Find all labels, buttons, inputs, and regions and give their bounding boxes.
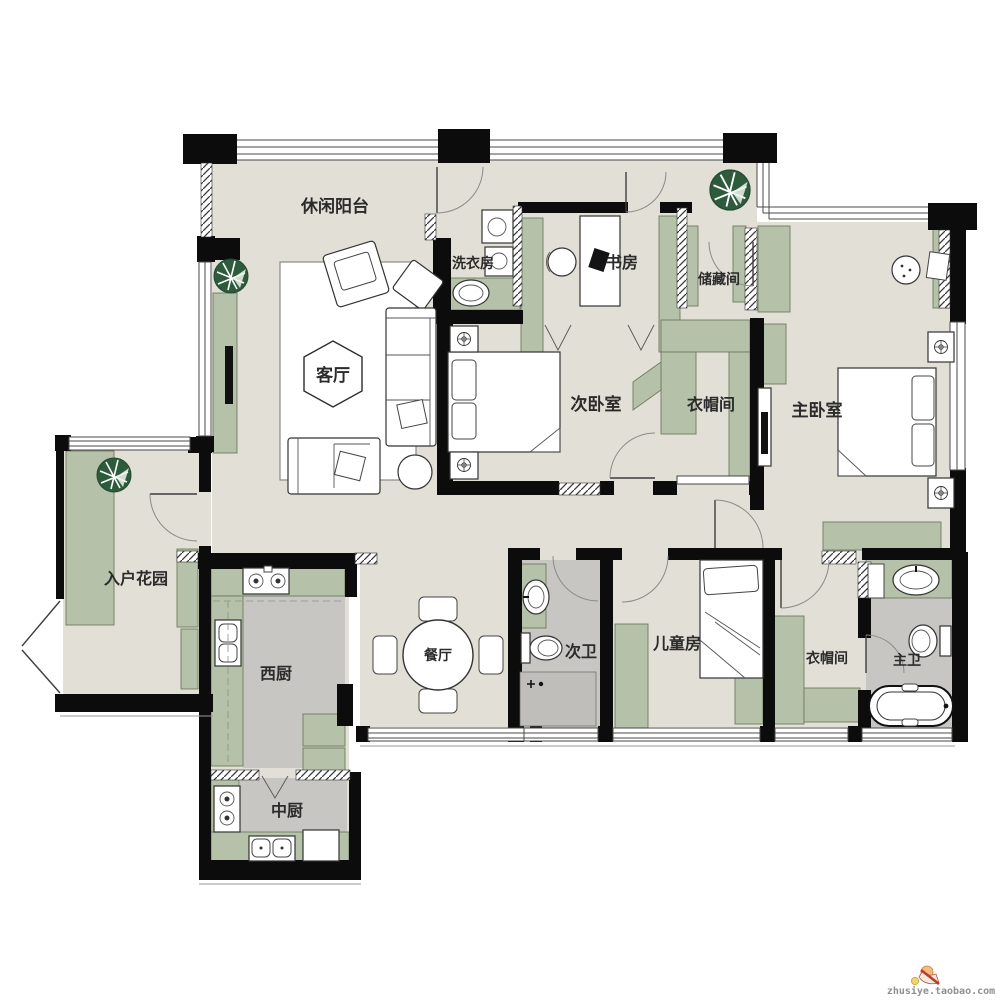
floor-plan-page: 休闲阳台 洗衣房 书房 储藏间 客厅 次卧室 衣帽间 主卧室 入户花园 西厨 餐… bbox=[0, 0, 1000, 1000]
plant-icon bbox=[710, 170, 750, 210]
laundry-sink bbox=[453, 280, 489, 306]
watermark-text: zhusiye.taobao.com bbox=[887, 985, 995, 997]
pillow bbox=[452, 360, 476, 400]
toilet bbox=[530, 636, 562, 660]
room-label-cloakroom-north: 衣帽间 bbox=[687, 395, 735, 414]
plant-icon bbox=[97, 458, 131, 492]
room-label-kids-room: 儿童房 bbox=[652, 634, 701, 653]
south-cloakroom-wardrobe bbox=[804, 688, 860, 722]
toilet-tank bbox=[940, 626, 951, 656]
storage-shelf bbox=[733, 226, 746, 302]
kids-room-window bbox=[613, 728, 760, 741]
room-label-master-bedroom: 主卧室 bbox=[792, 400, 843, 421]
plant-icon bbox=[214, 259, 248, 293]
watermark: zhusiye.taobao.com bbox=[887, 966, 995, 997]
dressing-stool bbox=[892, 256, 920, 284]
room-label-leisure-balcony: 休闲阳台 bbox=[300, 196, 369, 217]
north-cloakroom-wardrobe bbox=[729, 352, 750, 482]
cloakroom-sliding-door bbox=[677, 476, 749, 484]
master-bath-window bbox=[862, 728, 952, 741]
north-cloakroom-wardrobe bbox=[661, 320, 750, 352]
room-label-second-bath: 次卫 bbox=[565, 642, 597, 661]
room-label-laundry: 洗衣房 bbox=[452, 255, 494, 272]
pillow bbox=[912, 424, 934, 466]
dining-chair bbox=[419, 689, 457, 713]
dining-chair bbox=[479, 636, 503, 674]
dining-chair bbox=[373, 636, 397, 674]
room-label-chinese-kitchen: 中厨 bbox=[271, 801, 303, 820]
north-cloakroom-wardrobe bbox=[661, 352, 696, 434]
floor-plan-canvas: 休闲阳台 洗衣房 书房 储藏间 客厅 次卧室 衣帽间 主卧室 入户花园 西厨 餐… bbox=[0, 0, 1000, 1000]
master-wardrobe bbox=[758, 226, 790, 312]
watermark-mascot-icon bbox=[911, 966, 939, 985]
pillow bbox=[452, 403, 476, 439]
pillow bbox=[703, 565, 759, 595]
bath-shelf bbox=[868, 564, 884, 598]
study-cabinet-left bbox=[521, 218, 543, 352]
shoe-cabinet bbox=[181, 629, 198, 689]
dining-window bbox=[368, 728, 530, 741]
washing-machine bbox=[482, 210, 513, 243]
room-label-west-kitchen: 西厨 bbox=[260, 664, 292, 683]
room-label-second-bedroom: 次卧室 bbox=[571, 394, 622, 415]
room-label-study: 书房 bbox=[606, 253, 638, 272]
toilet-tank bbox=[521, 633, 530, 663]
room-label-living: 客厅 bbox=[315, 365, 350, 386]
dining-chair bbox=[419, 597, 457, 621]
window-top-middle bbox=[490, 140, 723, 160]
cloakroom-window bbox=[775, 728, 848, 741]
main-entrance-door bbox=[22, 601, 60, 693]
side-table bbox=[398, 455, 432, 489]
room-label-dining: 餐厅 bbox=[423, 647, 452, 664]
corridor-cabinet bbox=[823, 522, 941, 550]
sofa-small bbox=[288, 438, 380, 494]
tv-screen bbox=[225, 346, 233, 404]
dishwasher bbox=[303, 830, 339, 861]
sofa-main bbox=[386, 308, 436, 446]
room-label-entry-garden: 入户花园 bbox=[104, 569, 168, 588]
room-label-master-bath: 主卫 bbox=[893, 652, 921, 669]
kids-room-furniture bbox=[700, 560, 763, 678]
kids-wardrobe bbox=[615, 624, 648, 728]
window-top-right-step bbox=[757, 163, 928, 219]
pillow bbox=[912, 376, 934, 420]
study-chair bbox=[548, 248, 576, 276]
entry-garden-window bbox=[69, 437, 190, 450]
room-label-storage: 储藏间 bbox=[697, 271, 740, 288]
window-top-left bbox=[237, 140, 438, 160]
room-label-cloakroom-south: 衣帽间 bbox=[806, 650, 848, 667]
bath-window bbox=[524, 728, 598, 741]
vanity-mirror bbox=[926, 252, 949, 281]
kids-desk bbox=[735, 676, 763, 724]
